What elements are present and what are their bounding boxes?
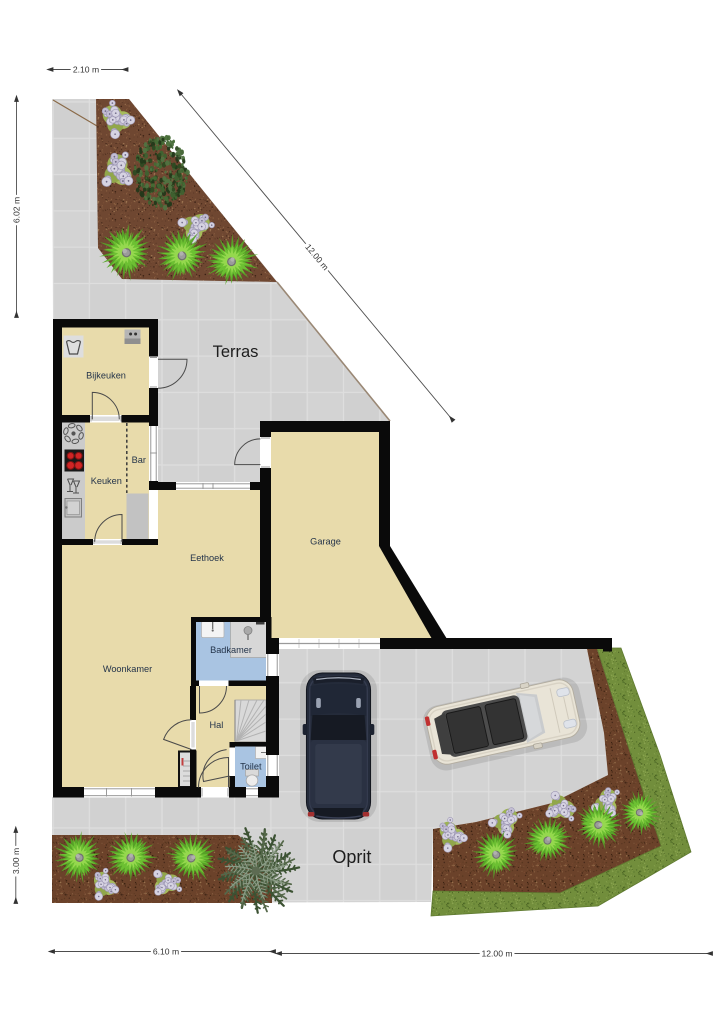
svg-text:Badkamer: Badkamer: [210, 645, 252, 655]
svg-text:Woonkamer: Woonkamer: [103, 664, 152, 674]
svg-text:Bijkeuken: Bijkeuken: [86, 371, 126, 381]
svg-text:3.00 m: 3.00 m: [11, 848, 21, 874]
svg-text:6.10 m: 6.10 m: [153, 947, 179, 957]
svg-text:Eethoek: Eethoek: [190, 553, 224, 563]
svg-text:6.02 m: 6.02 m: [12, 197, 22, 223]
svg-text:Oprit: Oprit: [332, 847, 371, 867]
svg-text:Toilet: Toilet: [240, 762, 262, 772]
svg-text:2.10 m: 2.10 m: [73, 65, 99, 75]
svg-text:Garage: Garage: [310, 537, 341, 547]
svg-text:Hal: Hal: [210, 720, 224, 730]
svg-text:Keuken: Keuken: [91, 476, 122, 486]
svg-text:Bar: Bar: [132, 455, 146, 465]
svg-text:Terras: Terras: [213, 343, 259, 361]
svg-text:12.00 m: 12.00 m: [481, 949, 512, 959]
